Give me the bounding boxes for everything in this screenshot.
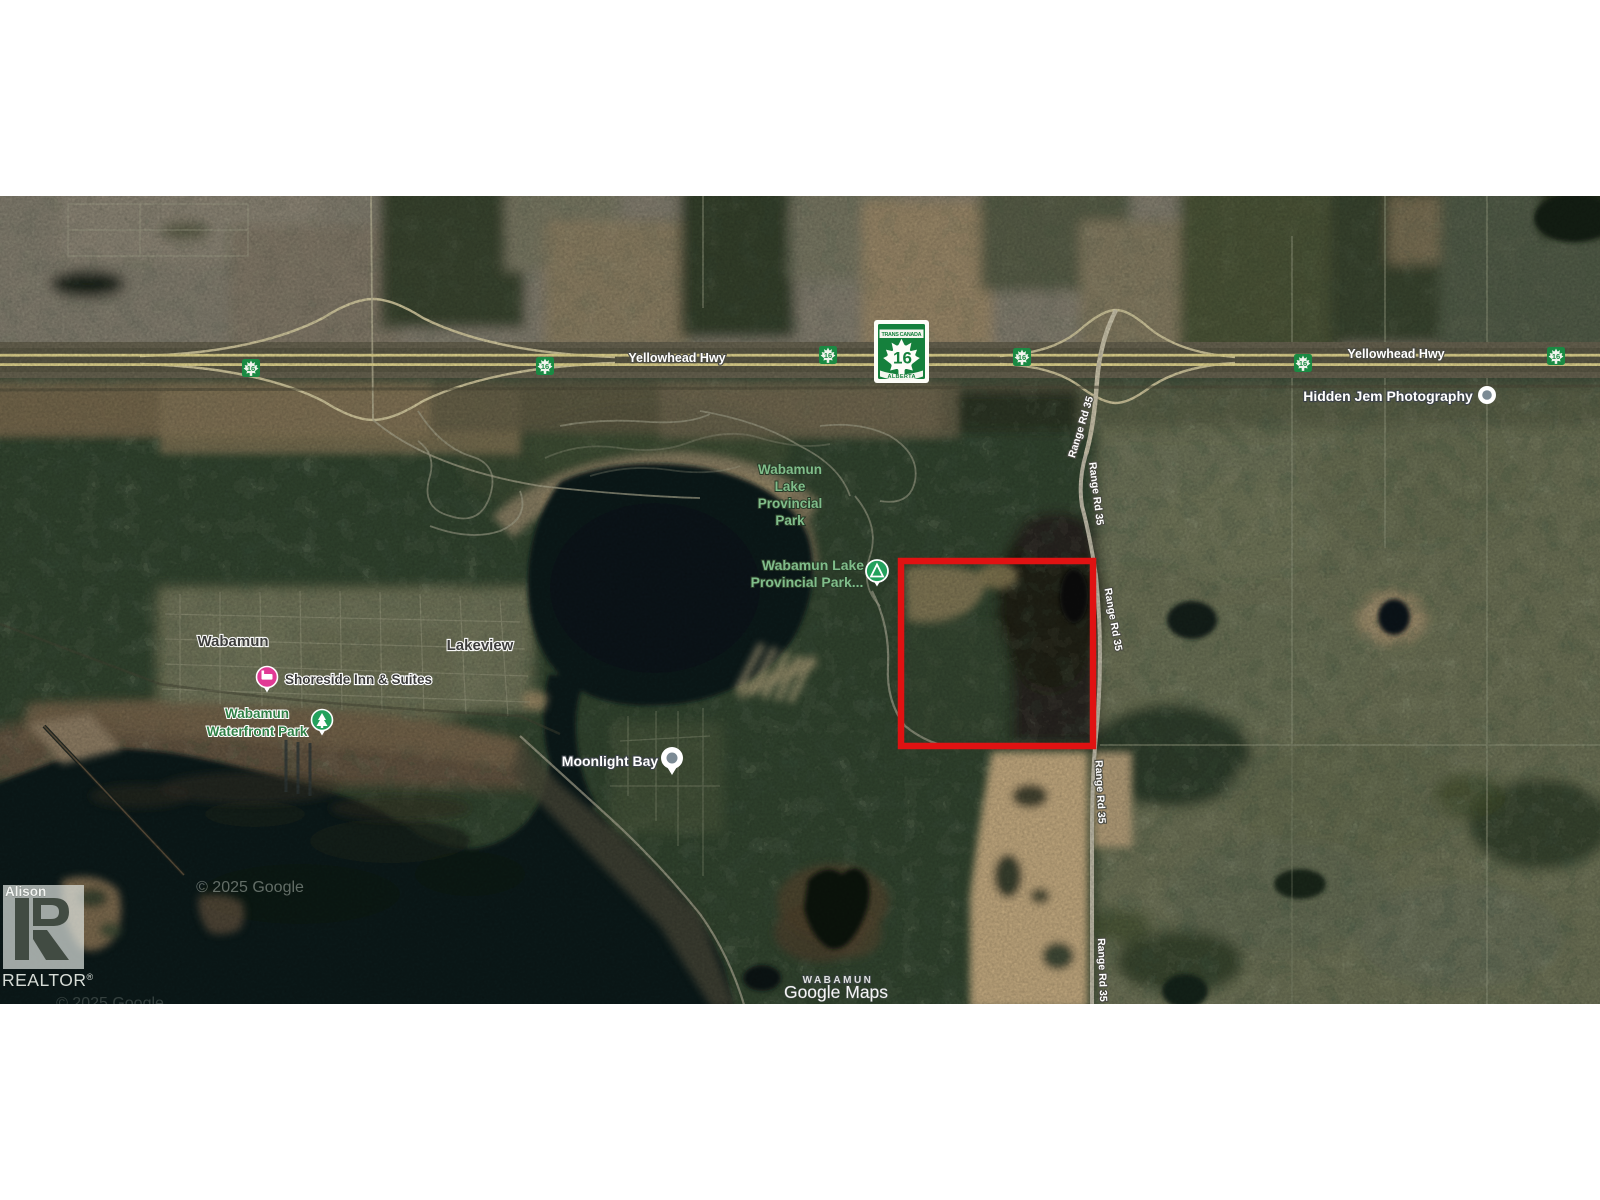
svg-text:Lakeview: Lakeview: [447, 637, 514, 654]
svg-text:Provincial: Provincial: [758, 496, 823, 511]
svg-text:Waterfront Park: Waterfront Park: [207, 724, 308, 739]
svg-text:Alison: Alison: [5, 884, 46, 899]
svg-text:Range Rd 35: Range Rd 35: [1095, 938, 1109, 1002]
svg-text:Lake: Lake: [775, 479, 806, 494]
svg-text:Wabamun Lake: Wabamun Lake: [762, 557, 864, 573]
svg-text:Yellowhead Hwy: Yellowhead Hwy: [628, 351, 725, 365]
svg-text:16: 16: [893, 349, 912, 368]
svg-text:Park: Park: [775, 513, 805, 528]
svg-text:Wabamun: Wabamun: [197, 633, 268, 650]
svg-text:Wabamun: Wabamun: [225, 706, 289, 721]
svg-text:Google Maps: Google Maps: [784, 982, 888, 1002]
svg-text:Hidden Jem Photography: Hidden Jem Photography: [1303, 388, 1473, 404]
svg-text:© 2025 Google: © 2025 Google: [196, 879, 304, 896]
svg-text:Moonlight Bay: Moonlight Bay: [562, 753, 659, 769]
svg-text:Yellowhead Hwy: Yellowhead Hwy: [1347, 347, 1444, 361]
svg-text:Shoreside Inn & Suites: Shoreside Inn & Suites: [285, 672, 432, 687]
svg-text:TRANS CANADA: TRANS CANADA: [882, 332, 922, 338]
svg-text:REALTOR®: REALTOR®: [2, 970, 94, 990]
svg-text:ALBERTA: ALBERTA: [888, 374, 916, 380]
svg-text:Provincial Park...: Provincial Park...: [751, 574, 864, 590]
svg-text:© 2025 Google: © 2025 Google: [56, 995, 164, 1004]
svg-text:Wabamun: Wabamun: [758, 462, 822, 477]
